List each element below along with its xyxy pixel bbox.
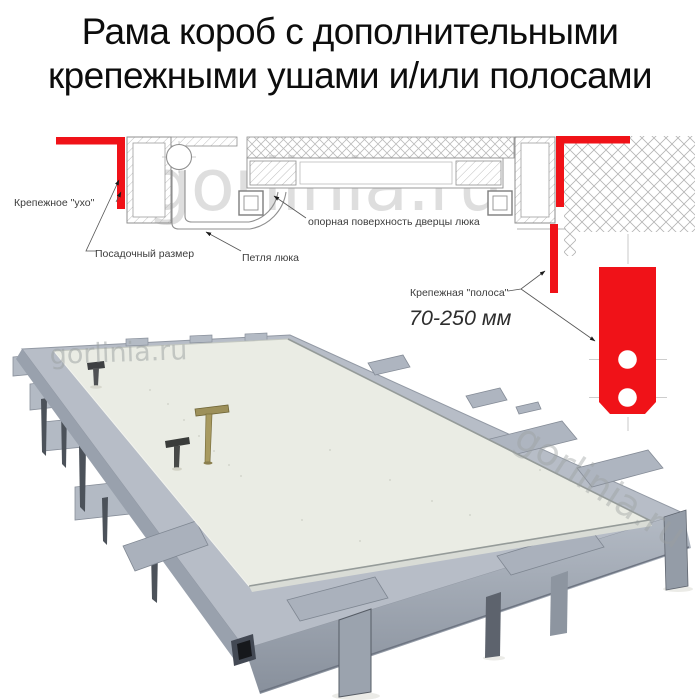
wall-hatch: [564, 136, 695, 256]
door-leaf-block-left: [250, 161, 296, 185]
anchor-spike: [102, 497, 108, 545]
leader-hinge: [206, 232, 241, 251]
product-photo: gorlinia.ru gorlinia.ru: [13, 333, 694, 700]
label-hinge: Петля люка: [242, 252, 299, 264]
hinge-box-right: [488, 191, 512, 215]
label-seat-size: Посадочный размер: [95, 248, 194, 260]
frame-notch: [190, 335, 212, 343]
anchor-spike: [79, 445, 86, 512]
leader-strip-b: [521, 289, 595, 341]
watermark-photo-left: gorlinia.ru: [49, 335, 188, 371]
edge-plate: [368, 355, 410, 375]
label-strip-range: 70-250 мм: [409, 306, 512, 330]
frame-leg: [485, 592, 501, 658]
label-support-surface: опорная поверхность дверцы люка: [308, 216, 480, 228]
leader-seat-size: [86, 180, 119, 251]
frame-leg: [550, 571, 568, 636]
edge-plate: [516, 402, 541, 414]
anchor-spike: [41, 398, 47, 456]
strip-hole-bottom: [618, 388, 637, 407]
door-leaf-block-right: [456, 161, 501, 185]
hinge-pin: [167, 145, 192, 170]
ceiling-slab: [247, 137, 514, 158]
hinge-box-left: [239, 191, 263, 215]
product-card: Рама короб с дополнительными крепежными …: [0, 0, 700, 700]
frame-profile-right-core: [521, 143, 549, 217]
mounting-strip-edge-highlight: [550, 224, 558, 293]
frame-profile-left-core: [133, 143, 165, 217]
edge-plate: [466, 388, 507, 408]
label-ear: Крепежное "ухо": [14, 197, 95, 209]
leader-strip-a: [508, 271, 545, 291]
label-strip: Крепежная "полоса": [410, 287, 509, 299]
figure: gorlinia.ru: [0, 0, 700, 700]
frame-leg: [339, 609, 371, 697]
strip-hole-top: [618, 350, 637, 369]
